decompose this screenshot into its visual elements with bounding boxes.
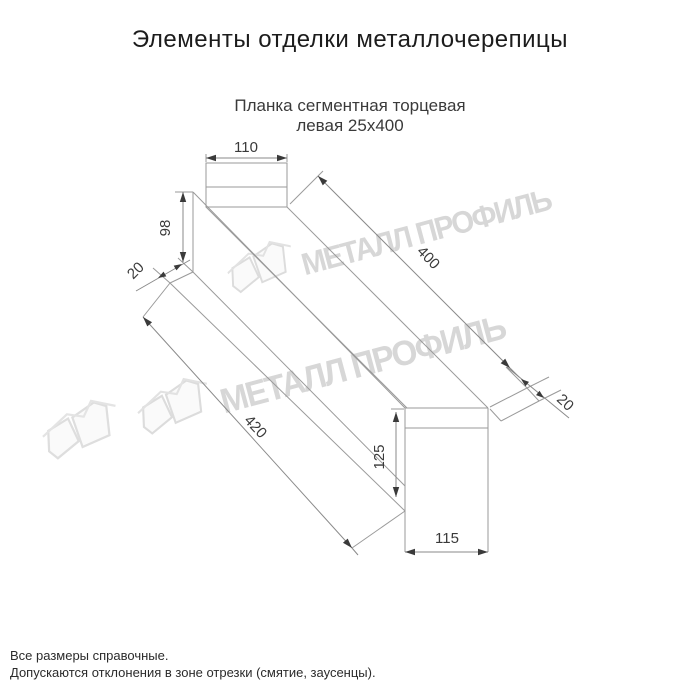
dim-label-20-left: 20 — [124, 259, 148, 283]
dim-line-420 — [143, 317, 352, 548]
top-end-section-outline — [206, 163, 287, 207]
right-hem-edge-upper — [490, 388, 527, 407]
right-hem-root-edge — [490, 409, 501, 421]
footer-note-2: Допускаются отклонения в зоне отрезки (с… — [10, 664, 376, 681]
dim-line-400 — [318, 176, 510, 368]
footer-note-1: Все размеры справочные. — [10, 647, 376, 664]
footer-notes: Все размеры справочные. Допускаются откл… — [10, 647, 376, 681]
ext-400-top — [290, 171, 323, 204]
left-end-hem-edge — [170, 272, 193, 283]
dim-label-110: 110 — [234, 139, 258, 156]
dim-label-125: 125 — [371, 444, 388, 469]
dim-line-20-right — [507, 367, 569, 418]
right-hem-edge-lower — [501, 401, 539, 421]
body-edge-top-right — [287, 207, 488, 408]
drawing-page: Элементы отделки металлочерепицы Планка … — [0, 0, 700, 700]
dim-label-420: 420 — [241, 412, 271, 442]
dim-label-400: 400 — [413, 243, 443, 273]
body-edge-top-mid — [206, 207, 407, 408]
ext-420-bottom — [352, 511, 405, 548]
ext-420-top — [143, 283, 170, 317]
dim-label-98: 98 — [157, 220, 174, 237]
dim-line-420-overrun — [352, 548, 358, 555]
ext-400-bottom — [506, 367, 527, 388]
dim-label-20-right: 20 — [553, 391, 577, 415]
dim-label-115: 115 — [435, 530, 459, 547]
technical-drawing: 110 98 20 400 420 20 125 115 — [0, 0, 700, 700]
